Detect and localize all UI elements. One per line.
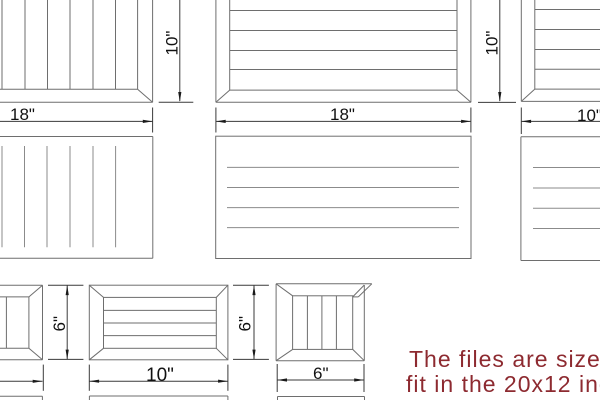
svg-text:10": 10" — [577, 106, 600, 125]
svg-text:10": 10" — [146, 365, 174, 386]
svg-text:The files are sized: The files are sized — [409, 346, 600, 372]
svg-text:fit in the 20x12 inc: fit in the 20x12 inc — [406, 371, 600, 397]
svg-text:18": 18" — [10, 105, 35, 124]
svg-text:10": 10" — [163, 31, 182, 56]
svg-text:18": 18" — [330, 105, 355, 124]
svg-text:area of the cutting: area of the cutting — [406, 396, 600, 400]
svg-text:10": 10" — [482, 31, 501, 56]
svg-text:6": 6" — [313, 364, 329, 383]
svg-text:6": 6" — [236, 316, 255, 332]
svg-text:6": 6" — [50, 316, 69, 332]
